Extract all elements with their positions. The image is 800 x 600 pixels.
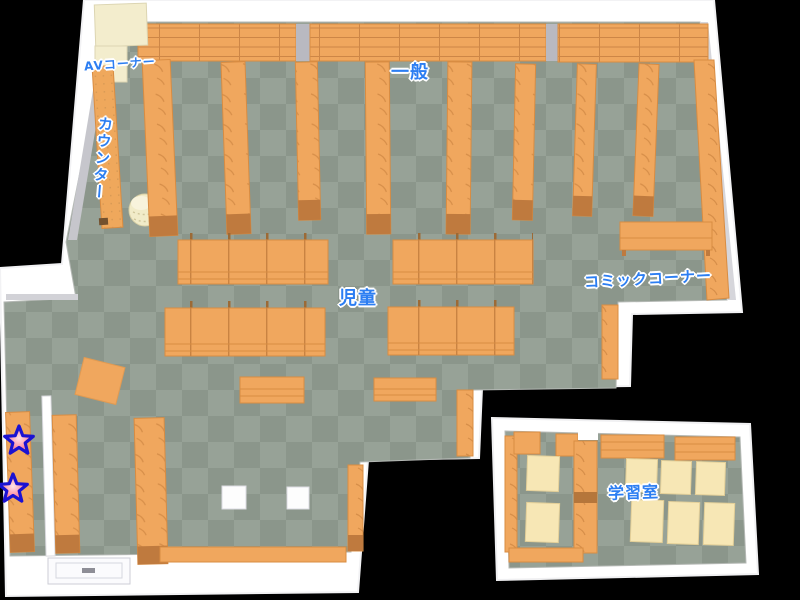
- library-floor-map: AVコーナー 一般 カウンター 児童 コミックコーナー 学習室: [0, 0, 800, 600]
- wing-shelf: [457, 390, 473, 456]
- children-low-table: [374, 378, 436, 401]
- general-shelf-row: [365, 62, 391, 234]
- top-wall-shelf-left: [138, 24, 296, 61]
- wing-shelf: [52, 415, 80, 554]
- floor-map-graphic: [0, 0, 800, 600]
- general-shelf-row: [512, 64, 535, 220]
- label-general: 一般: [391, 58, 429, 84]
- general-shelf-row: [573, 64, 597, 217]
- entrance-door: [48, 558, 130, 584]
- wall-pillar: [546, 24, 558, 61]
- label-study-room: 学習室: [608, 478, 660, 504]
- children-shelf: [393, 233, 533, 284]
- general-shelf-row: [295, 62, 320, 220]
- white-table: [222, 486, 246, 509]
- comic-wall-shelf: [602, 305, 618, 379]
- top-wall-shelf-center: [310, 24, 546, 61]
- children-shelf: [178, 233, 328, 284]
- children-shelf: [165, 301, 325, 356]
- children-low-table: [240, 377, 304, 403]
- bottom-wall-shelf: [160, 547, 346, 562]
- white-table: [287, 487, 309, 509]
- wing-shelf: [348, 465, 363, 551]
- general-shelf-row: [446, 62, 472, 234]
- label-children: 児童: [339, 284, 377, 310]
- top-wall-shelf-right: [558, 24, 708, 62]
- children-shelf: [388, 300, 514, 355]
- wing-shelf: [134, 418, 168, 565]
- wall-pillar: [296, 24, 310, 61]
